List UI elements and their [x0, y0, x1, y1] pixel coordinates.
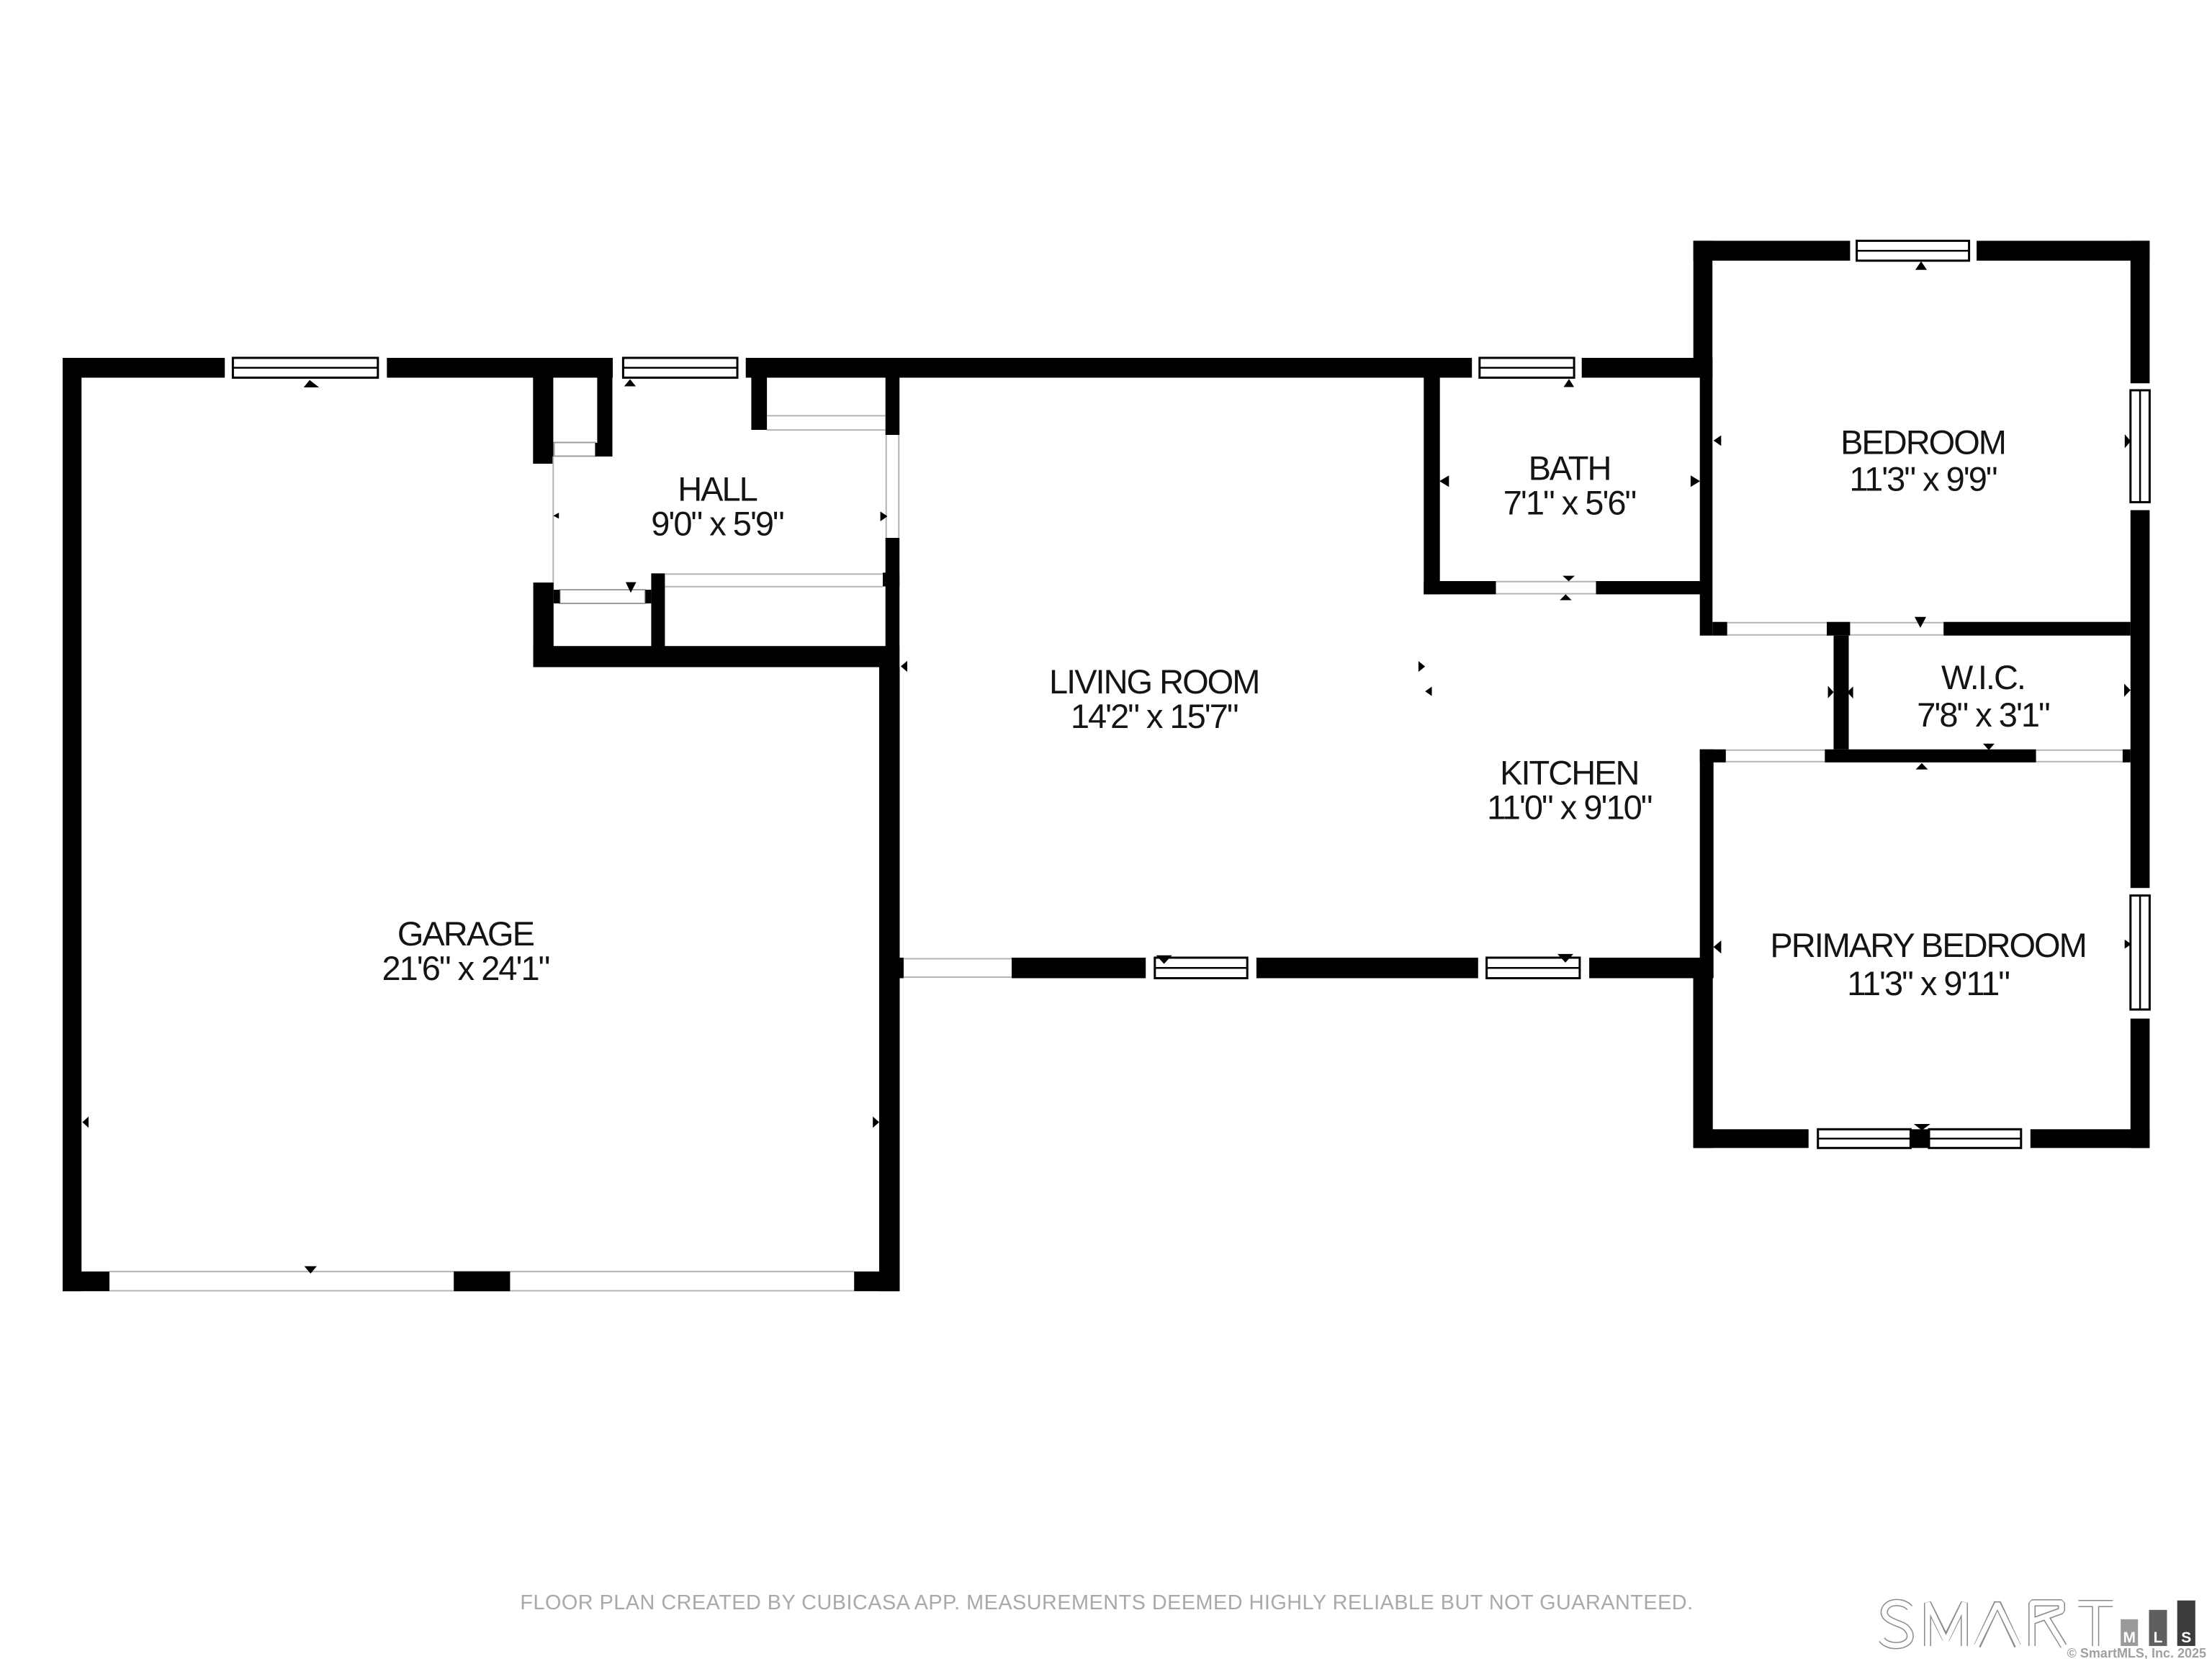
- svg-text:21'6" x 24'1": 21'6" x 24'1": [382, 949, 549, 987]
- svg-text:BEDROOM: BEDROOM: [1840, 423, 2005, 462]
- svg-text:© SmartMLS, Inc. 2025: © SmartMLS, Inc. 2025: [2067, 1646, 2206, 1659]
- svg-text:7'1" x 5'6": 7'1" x 5'6": [1503, 483, 1636, 521]
- svg-text:11'3" x 9'11": 11'3" x 9'11": [1847, 964, 2009, 1002]
- svg-text:14'2" x 15'7": 14'2" x 15'7": [1071, 697, 1238, 735]
- svg-text:W.I.C.: W.I.C.: [1941, 658, 2025, 696]
- svg-text:11'0" x 9'10": 11'0" x 9'10": [1487, 788, 1652, 827]
- svg-text:9'0" x 5'9": 9'0" x 5'9": [651, 505, 783, 543]
- svg-text:KITCHEN: KITCHEN: [1500, 754, 1638, 792]
- svg-text:HALL: HALL: [678, 470, 757, 508]
- svg-text:11'3" x 9'9": 11'3" x 9'9": [1849, 460, 1996, 498]
- svg-text:L: L: [2154, 1629, 2163, 1646]
- svg-text:GARAGE: GARAGE: [397, 914, 534, 953]
- svg-text:S: S: [2181, 1629, 2191, 1646]
- svg-text:BATH: BATH: [1529, 449, 1611, 487]
- svg-text:LIVING ROOM: LIVING ROOM: [1049, 662, 1259, 701]
- svg-text:7'8" x 3'1": 7'8" x 3'1": [1917, 696, 2049, 734]
- svg-text:FLOOR PLAN CREATED BY CUBICASA: FLOOR PLAN CREATED BY CUBICASA APP. MEAS…: [520, 1591, 1693, 1614]
- svg-text:M: M: [2123, 1629, 2136, 1646]
- svg-text:PRIMARY BEDROOM: PRIMARY BEDROOM: [1770, 926, 2085, 964]
